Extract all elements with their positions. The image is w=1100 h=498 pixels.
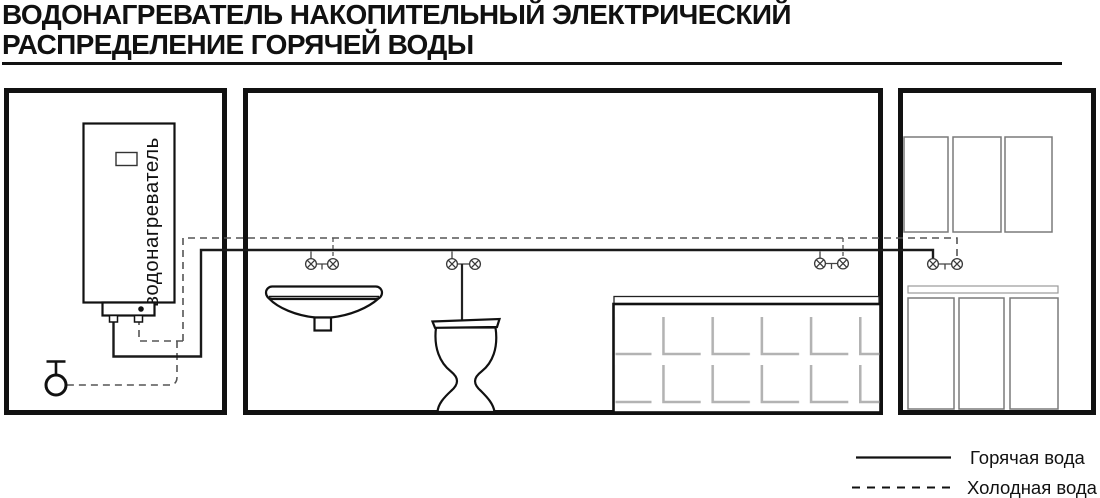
upper-cabinet (904, 137, 948, 232)
washbasin (266, 287, 382, 331)
sink-valves (306, 238, 339, 270)
heater-indicator-dot (138, 306, 144, 312)
washbasin-drain (315, 318, 332, 331)
countertop (908, 286, 1058, 293)
kitchen-valves (928, 259, 963, 270)
legend-hot-label: Горячая вода (970, 447, 1085, 469)
washbasin-bowl (269, 299, 379, 318)
heater-cold-inlet-nozzle (135, 316, 143, 323)
title-line-1: ВОДОНАГРЕВАТЕЛЬ НАКОПИТЕЛЬНЫЙ ЭЛЕКТРИЧЕС… (2, 0, 791, 30)
valve-icon (470, 259, 481, 270)
tap-handle (47, 362, 66, 376)
plumbing-scheme: водонагреватель (0, 0, 1100, 498)
valve-icon (328, 259, 339, 270)
bathtub-tile-pattern (616, 308, 880, 411)
valve-icon (952, 259, 963, 270)
upper-cabinet (953, 137, 1001, 232)
upper-cabinet (1005, 137, 1052, 232)
valve-icon (447, 259, 458, 270)
water-heater-distribution-diagram: ВОДОНАГРЕВАТЕЛЬ НАКОПИТЕЛЬНЫЙ ЭЛЕКТРИЧЕС… (0, 0, 1100, 498)
toilet (433, 319, 500, 412)
legend-cold-label: Холодная вода (967, 477, 1097, 498)
toilet-body (435, 328, 496, 413)
heater-display (116, 153, 137, 166)
kitchen-mixer-link (938, 264, 951, 270)
base-cabinet (1010, 298, 1058, 409)
toilet-valves (447, 252, 481, 322)
tap-body (46, 375, 66, 395)
heater-label: водонагреватель (140, 137, 163, 307)
valve-icon (815, 258, 826, 269)
title-line-2: РАСПРЕДЕЛЕНИЕ ГОРЯЧЕЙ ВОДЫ (2, 30, 791, 60)
title-underline (2, 62, 1062, 65)
cold-pipe-to-supply-tap (67, 341, 178, 385)
base-cabinet (908, 298, 954, 409)
valve-icon (838, 258, 849, 269)
valve-icon (306, 259, 317, 270)
bathtub (614, 297, 881, 413)
heater-base (103, 303, 155, 316)
tub-mixer-link (825, 264, 837, 270)
bathtub-valves (815, 238, 849, 269)
valve-icon (928, 259, 939, 270)
heater-hot-outlet-nozzle (110, 316, 118, 323)
kitchen-cabinets (904, 137, 1058, 409)
sink-mixer-link (316, 264, 327, 270)
base-cabinet (959, 298, 1004, 409)
cold-pipe-to-heater-inlet (139, 322, 183, 342)
water-heater: водонагреватель (84, 124, 175, 323)
main-water-tap-icon (46, 362, 66, 396)
page-title: ВОДОНАГРЕВАТЕЛЬ НАКОПИТЕЛЬНЫЙ ЭЛЕКТРИЧЕС… (2, 0, 791, 59)
toilet-rim (433, 319, 500, 328)
